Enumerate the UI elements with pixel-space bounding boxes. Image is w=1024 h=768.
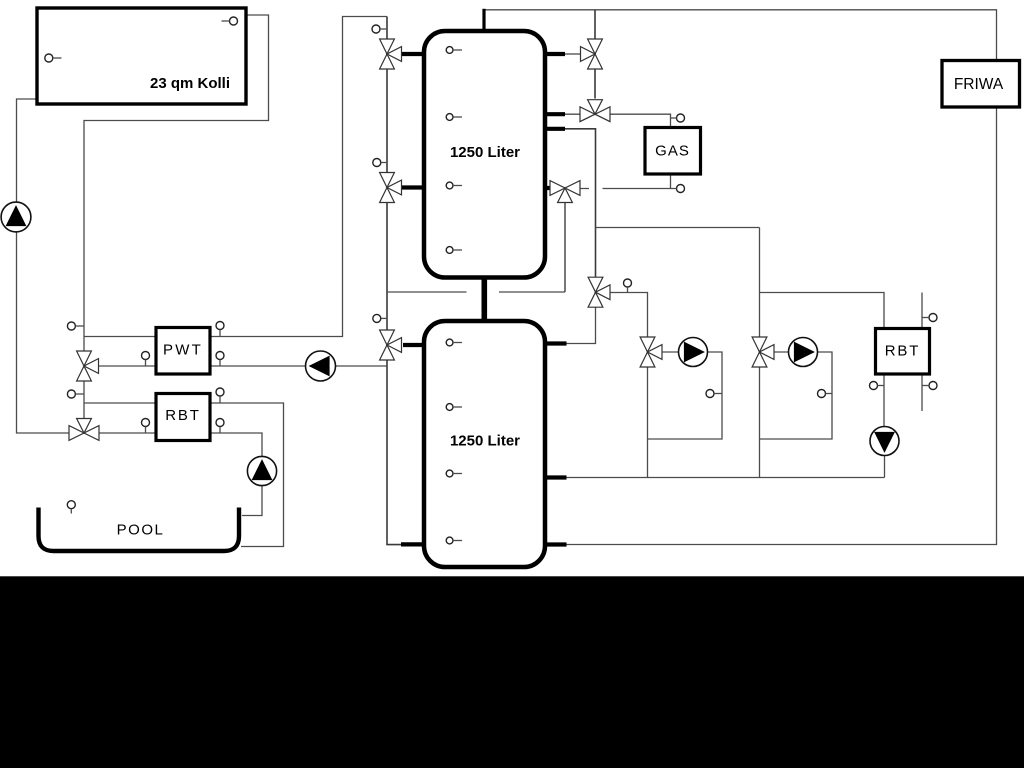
- svg-text:1250 Liter: 1250 Liter: [450, 144, 520, 161]
- svg-text:FRIWA: FRIWA: [954, 76, 1004, 93]
- svg-text:GAS: GAS: [655, 143, 690, 160]
- svg-text:PWT: PWT: [163, 342, 203, 359]
- svg-text:1250 Liter: 1250 Liter: [450, 433, 520, 450]
- svg-text:POOL: POOL: [117, 522, 165, 539]
- svg-text:RBT: RBT: [885, 343, 920, 360]
- svg-text:RBT: RBT: [165, 407, 200, 424]
- svg-text:23 qm Kolli: 23 qm Kolli: [150, 75, 230, 92]
